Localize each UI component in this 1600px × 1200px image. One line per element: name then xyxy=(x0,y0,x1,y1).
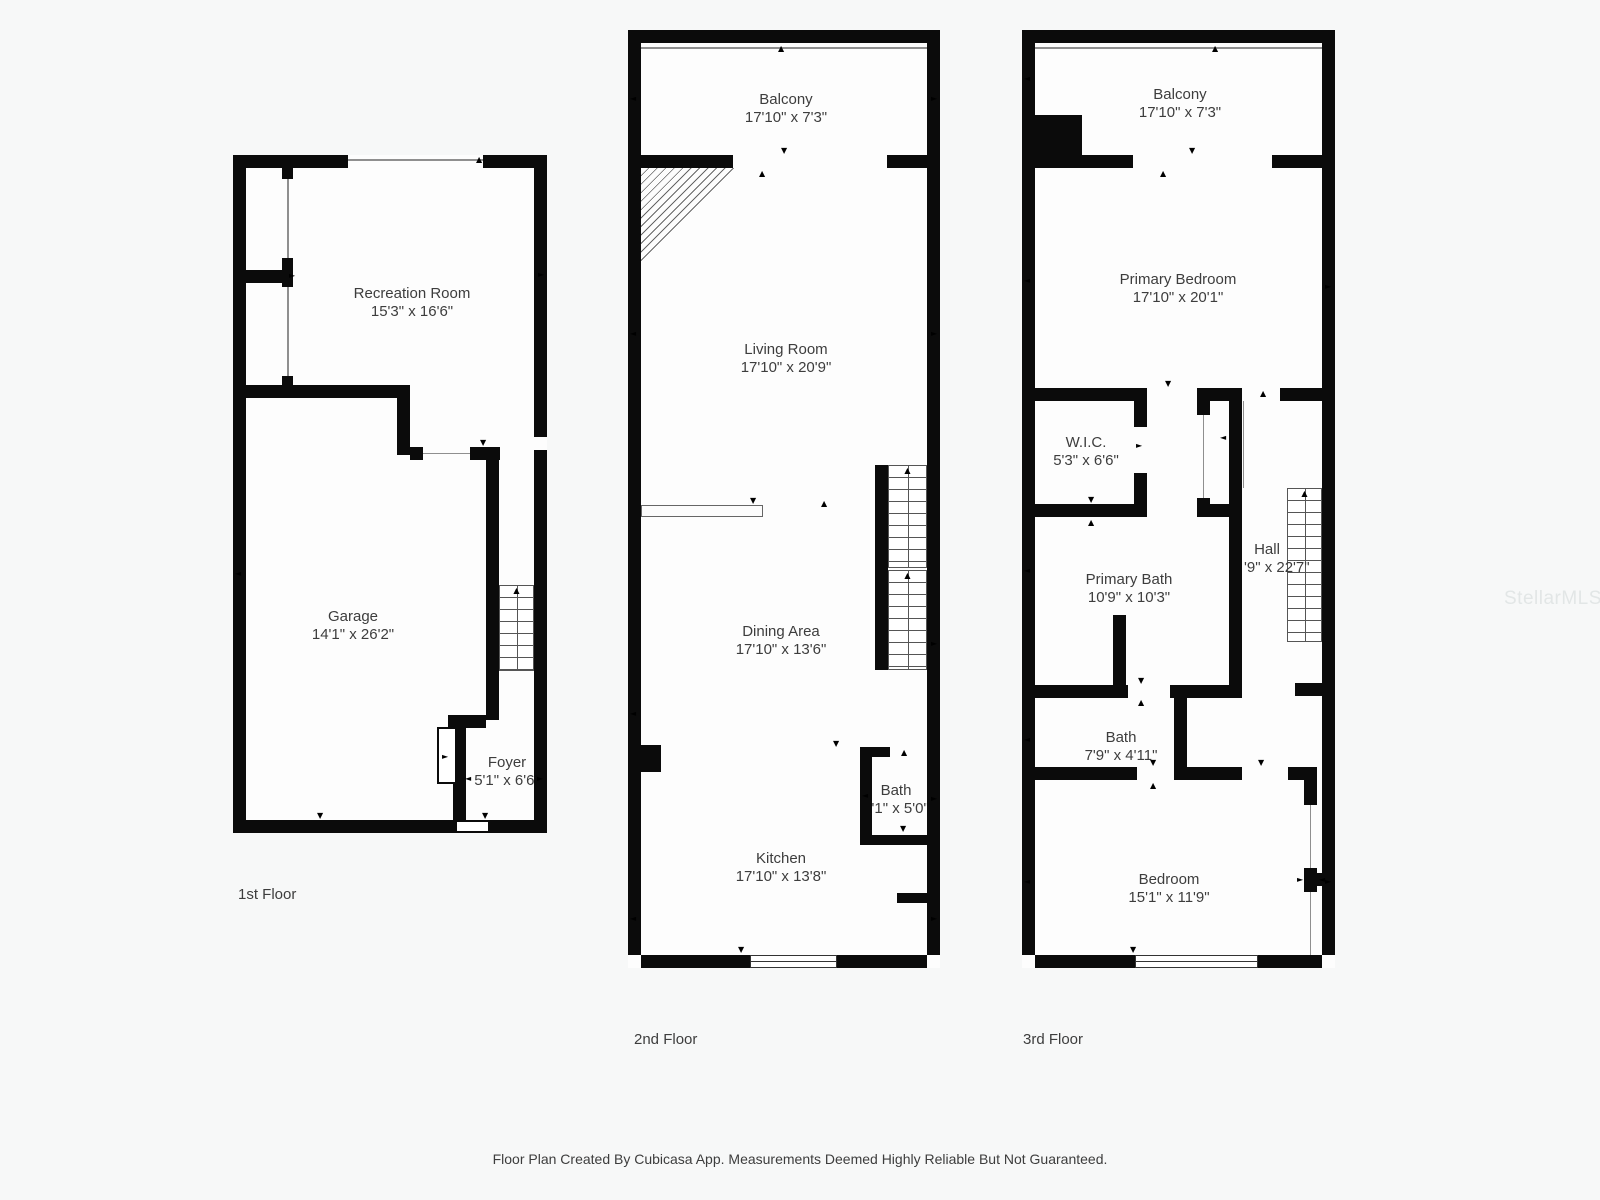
partition-line xyxy=(1310,892,1311,955)
stair-center-line xyxy=(517,586,518,670)
disclaimer-text: Floor Plan Created By Cubicasa App. Meas… xyxy=(0,1151,1600,1167)
wall xyxy=(1304,868,1317,892)
door-threshold xyxy=(423,453,470,454)
wall xyxy=(628,155,733,168)
wall xyxy=(233,168,246,833)
room-label-primary-bedroom: Primary Bedroom17'10" x 20'1" xyxy=(1120,271,1237,307)
wall xyxy=(641,745,661,772)
wall xyxy=(282,168,293,179)
room-label-dining-area: Dining Area17'10" x 13'6" xyxy=(736,623,827,659)
wall xyxy=(860,747,890,757)
opening-marker-icon: ▼ xyxy=(1130,946,1136,954)
stairs-up-icon: ▲ xyxy=(1301,490,1307,498)
room-label-hall: Hall xyxy=(1254,541,1280,559)
room-dims: 7'9" x 4'11" xyxy=(1085,747,1158,765)
railing-line xyxy=(1035,47,1322,49)
opening-marker-icon: ▼ xyxy=(900,825,906,833)
opening-marker-icon: ◄ xyxy=(235,570,241,578)
wall xyxy=(246,385,410,398)
stair-center-line xyxy=(908,466,909,567)
wall xyxy=(1134,388,1147,427)
opening-marker-icon: ◄ xyxy=(1220,434,1226,442)
wall xyxy=(837,955,927,968)
opening-marker-icon: ◄ xyxy=(630,915,636,923)
staircase-lower: ▲ xyxy=(888,570,927,670)
floor-plan-2nd: ▲ ▲ ▲ ▼ ▲ ◄ ◄ ◄ ◄ ► ► ► ► ► ▼ ▲ ▼ ▲ ▼ ◄ … xyxy=(628,30,940,968)
wall xyxy=(410,447,423,460)
wall xyxy=(1022,685,1128,698)
stellar-mls-watermark: StellarMLS xyxy=(1504,588,1600,610)
opening-marker-icon: ◄ xyxy=(630,330,636,338)
floor-label-3rd: 3rd Floor xyxy=(1023,1031,1083,1048)
opening-marker-icon: ▼ xyxy=(480,439,486,447)
room-dims: 17'10" x 13'8" xyxy=(736,868,827,886)
room-label-foyer: Foyer5'1" x 6'6" xyxy=(474,754,540,790)
stair-center-line xyxy=(908,571,909,669)
room-name: Bath xyxy=(863,782,929,800)
railing-line xyxy=(348,159,483,161)
opening-marker-icon: ◄ xyxy=(1024,277,1030,285)
room-name: Balcony xyxy=(1139,86,1221,104)
wall xyxy=(486,447,499,720)
opening-marker-icon: ▲ xyxy=(1212,45,1218,53)
entry-door xyxy=(455,820,490,833)
window xyxy=(750,955,837,968)
wall xyxy=(1035,767,1137,780)
room-dims: 17'10" x 13'6" xyxy=(736,641,827,659)
room-name: Balcony xyxy=(745,91,827,109)
opening-marker-icon: ▲ xyxy=(778,45,784,53)
opening-marker-icon: ◄ xyxy=(1024,736,1030,744)
wall xyxy=(1197,401,1210,415)
wall xyxy=(1022,30,1335,43)
wall xyxy=(927,43,940,955)
wall xyxy=(1035,504,1147,517)
wall xyxy=(534,168,547,437)
opening-marker-icon: ► xyxy=(931,330,937,338)
opening-marker-icon: ▲ xyxy=(1088,519,1094,527)
room-dims: 5'1" x 5'0" xyxy=(863,800,929,818)
opening-marker-icon: ▼ xyxy=(1165,380,1171,388)
opening-marker-icon: ► xyxy=(537,775,543,783)
wall xyxy=(490,820,534,833)
floor-plan-1st: ▲ ▲ ► ◄ ► ▼ ▼ ▼ ► ◄ ► Recreation Room15'… xyxy=(233,155,547,833)
stairs-up-icon: ▲ xyxy=(904,572,910,580)
opening-marker-icon: ▲ xyxy=(1150,782,1156,790)
opening-marker-icon: ▼ xyxy=(833,740,839,748)
opening-marker-icon: ▼ xyxy=(482,812,488,820)
partition-line xyxy=(1243,401,1244,488)
opening-marker-icon: ► xyxy=(931,915,937,923)
wall xyxy=(483,155,547,168)
room-label-recreation-room: Recreation Room15'3" x 16'6" xyxy=(354,285,471,321)
wall xyxy=(1229,388,1242,697)
opening-marker-icon: ▼ xyxy=(738,946,744,954)
room-dims: 14'1" x 26'2" xyxy=(312,626,394,644)
opening-marker-icon: ▼ xyxy=(1258,759,1264,767)
wall xyxy=(1280,388,1335,401)
room-dims: 17'10" x 7'3" xyxy=(1139,104,1221,122)
wall xyxy=(397,398,410,455)
room-label-bedroom: Bedroom15'1" x 11'9" xyxy=(1128,871,1209,907)
door-swing-icon: ► xyxy=(442,753,448,761)
room-name: Recreation Room xyxy=(354,285,471,303)
opening-marker-icon: ► xyxy=(538,271,544,279)
opening-marker-icon: ▼ xyxy=(1189,147,1195,155)
opening-marker-icon: ▼ xyxy=(1088,496,1094,504)
room-name: Hall xyxy=(1254,541,1280,559)
wall xyxy=(641,955,750,968)
opening-marker-icon: ▲ xyxy=(901,749,907,757)
opening-marker-icon: ▲ xyxy=(1160,170,1166,178)
room-label-balcony: Balcony17'10" x 7'3" xyxy=(745,91,827,127)
room-dims: 17'10" x 7'3" xyxy=(745,109,827,127)
wall xyxy=(1174,698,1187,767)
wall xyxy=(887,155,940,168)
opening-marker-icon: ◄ xyxy=(630,710,636,718)
opening-marker-icon: ◄ xyxy=(862,792,868,800)
room-name: Bedroom xyxy=(1128,871,1209,889)
room-label-bath: Bath5'1" x 5'0" xyxy=(863,782,929,818)
counter xyxy=(641,505,763,517)
room-dims: 15'3" x 16'6" xyxy=(354,303,471,321)
wall xyxy=(1022,388,1147,401)
stairs-up-icon: ▲ xyxy=(513,587,519,595)
wall xyxy=(233,155,348,168)
opening-marker-icon: ▼ xyxy=(1138,677,1144,685)
room-dims: 5'3" x 6'6" xyxy=(1053,452,1119,470)
opening-marker-icon: ▲ xyxy=(1260,390,1266,398)
wall xyxy=(1022,43,1035,955)
stair-void-hatch xyxy=(641,168,741,268)
floor-label-2nd: 2nd Floor xyxy=(634,1031,697,1048)
room-label-balcony: Balcony17'10" x 7'3" xyxy=(1139,86,1221,122)
wall xyxy=(1272,155,1335,168)
room-name: Primary Bedroom xyxy=(1120,271,1237,289)
opening-marker-icon: ◄ xyxy=(1024,567,1030,575)
wall xyxy=(1258,955,1322,968)
room-label-primary-bath: Primary Bath10'9" x 10'3" xyxy=(1086,571,1173,607)
room-dims: 15'1" x 11'9" xyxy=(1128,889,1209,907)
floor-plan-3rd: ▲ ▲ ▼ ▲ ◄ ◄ ◄ ◄ ◄ ► ► ▼ ▲ ► ▼ ▲ ◄ ▼ ▲ ▼ … xyxy=(1022,30,1335,968)
opening-marker-icon: ▼ xyxy=(1150,759,1156,767)
room-label-wic: W.I.C.5'3" x 6'6" xyxy=(1053,434,1119,470)
wall xyxy=(628,30,940,43)
room-name: Bath xyxy=(1085,729,1158,747)
opening-marker-icon: ► xyxy=(1325,878,1331,886)
wall xyxy=(1035,955,1135,968)
opening-marker-icon: ► xyxy=(1325,283,1331,291)
window-pane-line xyxy=(1136,961,1257,962)
chimney-block xyxy=(1035,115,1082,168)
room-name: Dining Area xyxy=(736,623,827,641)
room-name: Kitchen xyxy=(736,850,827,868)
room-name: Primary Bath xyxy=(1086,571,1173,589)
staircase: ▲ xyxy=(499,585,534,671)
room-label-kitchen: Kitchen17'10" x 13'8" xyxy=(736,850,827,886)
room-dims: 17'10" x 20'1" xyxy=(1120,289,1237,307)
wall xyxy=(1304,767,1317,805)
room-label-garage: Garage14'1" x 26'2" xyxy=(312,608,394,644)
room-name: Garage xyxy=(312,608,394,626)
opening-marker-icon: ◄ xyxy=(630,95,636,103)
room-label-living-room: Living Room17'10" x 20'9" xyxy=(741,341,832,377)
opening-marker-icon: ▼ xyxy=(781,147,787,155)
room-dims-hall: '9" x 22'7" xyxy=(1244,559,1310,577)
wall xyxy=(1322,43,1335,955)
wall xyxy=(246,820,455,833)
opening-marker-icon: ► xyxy=(931,95,937,103)
room-dims: 17'10" x 20'9" xyxy=(741,359,832,377)
opening-marker-icon: ▲ xyxy=(759,170,765,178)
opening-marker-icon: ► xyxy=(1297,876,1303,884)
window xyxy=(1135,955,1258,968)
floor-label-1st: 1st Floor xyxy=(238,886,296,903)
room-name: Living Room xyxy=(741,341,832,359)
staircase-upper: ▲ xyxy=(888,465,927,568)
wall xyxy=(1174,767,1242,780)
window-pane-line xyxy=(751,961,836,962)
wall xyxy=(246,270,288,283)
partition-line xyxy=(1203,415,1204,498)
opening-marker-icon: ◄ xyxy=(465,775,471,783)
opening-marker-icon: ▲ xyxy=(476,156,482,164)
opening-marker-icon: ► xyxy=(931,795,937,803)
opening-marker-icon: ► xyxy=(289,272,295,280)
opening-marker-icon: ◄ xyxy=(1319,876,1325,884)
door-swing-icon: ► xyxy=(1136,442,1142,450)
room-label-bath: Bath7'9" x 4'11" xyxy=(1085,729,1158,765)
opening-marker-icon: ◄ xyxy=(1024,878,1030,886)
opening-marker-icon: ▼ xyxy=(317,812,323,820)
opening-marker-icon: ▲ xyxy=(821,500,827,508)
floor-plan-page: ▲ ▲ ► ◄ ► ▼ ▼ ▼ ► ◄ ► Recreation Room15'… xyxy=(0,0,1600,1200)
room-name: W.I.C. xyxy=(1053,434,1119,452)
opening-marker-icon: ▲ xyxy=(1138,699,1144,707)
stairs-up-icon: ▲ xyxy=(904,467,910,475)
opening-marker-icon: ▼ xyxy=(750,497,756,505)
wall xyxy=(1295,683,1335,696)
wall xyxy=(875,465,888,670)
room-dims: 5'1" x 6'6" xyxy=(474,772,540,790)
wall xyxy=(860,835,927,845)
room-name: Foyer xyxy=(474,754,540,772)
partition-line xyxy=(1310,805,1311,868)
opening-marker-icon: ◄ xyxy=(1024,75,1030,83)
opening-marker-icon: ► xyxy=(931,640,937,648)
wall xyxy=(1170,685,1242,698)
room-dims: 10'9" x 10'3" xyxy=(1086,589,1173,607)
wall xyxy=(897,893,927,903)
wall xyxy=(628,43,641,955)
wall xyxy=(1113,615,1126,685)
